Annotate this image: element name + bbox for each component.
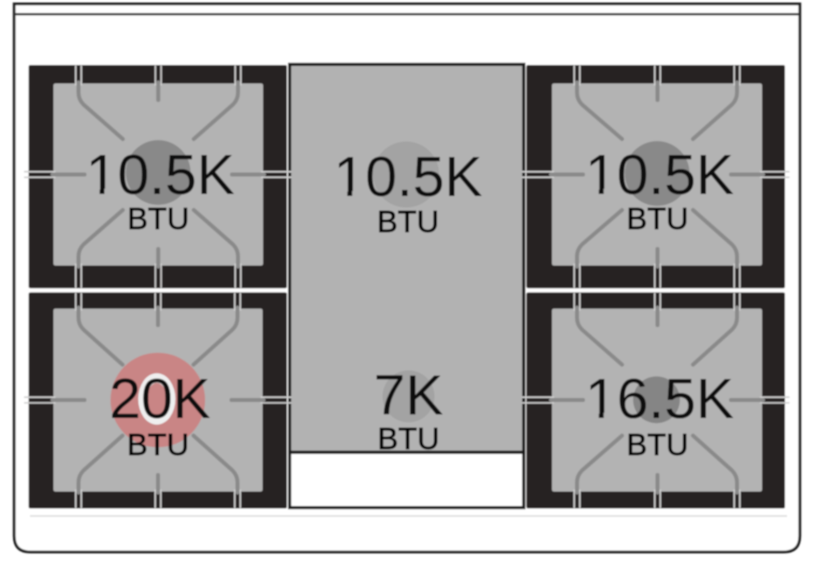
svg-text:BTU: BTU (627, 201, 689, 236)
svg-text:10.5K: 10.5K (86, 143, 235, 207)
svg-text:20K: 20K (109, 367, 210, 431)
svg-text:BTU: BTU (377, 204, 439, 239)
svg-text:BTU: BTU (378, 421, 440, 456)
svg-text:16.5K: 16.5K (585, 367, 734, 431)
svg-text:10.5K: 10.5K (334, 145, 483, 209)
svg-text:BTU: BTU (627, 427, 689, 462)
svg-text:BTU: BTU (127, 201, 189, 236)
svg-text:BTU: BTU (127, 427, 189, 462)
svg-text:10.5K: 10.5K (585, 143, 734, 207)
svg-text:7K: 7K (374, 364, 444, 428)
